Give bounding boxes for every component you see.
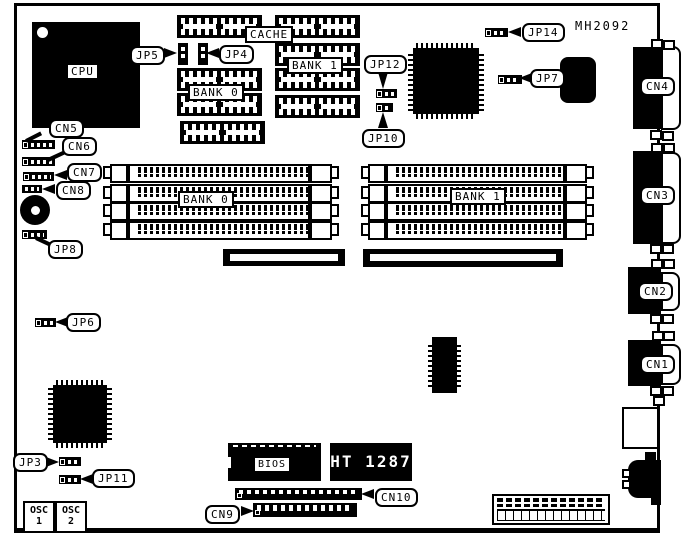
din-tab xyxy=(622,469,631,478)
bios-label: BIOS xyxy=(253,456,291,473)
cn7-label: CN7 xyxy=(67,163,102,182)
terminal-block xyxy=(492,494,610,525)
jp5-callout-pointer xyxy=(164,48,177,58)
bracket-tab xyxy=(663,40,675,50)
osc2-socket: OSC 2 xyxy=(55,501,87,533)
bracket-tab xyxy=(651,259,663,269)
jp12-jumper xyxy=(376,89,397,98)
bracket-tab xyxy=(651,39,663,49)
pin1-marker xyxy=(60,459,65,465)
bracket-tab xyxy=(650,386,662,396)
simm-slot xyxy=(368,164,587,183)
pin1-marker xyxy=(499,77,504,83)
jp12-callout-pointer xyxy=(378,72,388,89)
bracket-tab xyxy=(650,130,662,140)
bracket-tab xyxy=(662,314,674,324)
pin1-marker xyxy=(377,105,382,111)
jp4-callout-pointer xyxy=(206,48,219,58)
pin1-marker xyxy=(237,493,242,498)
bracket-tab xyxy=(653,396,665,406)
keyboard-din-connector xyxy=(628,460,661,498)
bracket-tab xyxy=(663,143,675,153)
osc1-number: 1 xyxy=(25,516,53,527)
osc1-name: OSC xyxy=(25,505,53,516)
cn9-header xyxy=(253,503,357,517)
bracket-tab xyxy=(651,143,663,153)
pin1-marker xyxy=(486,30,491,36)
simm-bank1-label: BANK 1 xyxy=(450,188,506,205)
cn5-label: CN5 xyxy=(49,119,84,138)
bracket-tab xyxy=(662,244,674,254)
cpu-label: CPU xyxy=(66,63,99,80)
bracket-tab xyxy=(650,244,662,254)
pin1-marker xyxy=(24,174,29,180)
cn2-label: CN2 xyxy=(638,282,673,301)
jp3-callout-pointer xyxy=(46,457,59,467)
bracket-tab xyxy=(663,331,675,341)
card-edge-slot xyxy=(223,249,345,266)
cache-socket xyxy=(275,95,360,118)
cn10-header xyxy=(235,488,362,500)
pin1-marker xyxy=(36,320,41,326)
bracket-tab xyxy=(662,131,674,141)
cn8-header xyxy=(22,185,42,193)
jp5-jumper xyxy=(178,43,188,65)
jp6-label: JP6 xyxy=(66,313,101,332)
socket-band xyxy=(281,104,354,110)
small-chip xyxy=(560,57,596,103)
cn6-label: CN6 xyxy=(62,137,97,156)
jp10-jumper xyxy=(376,103,393,112)
pin1-marker xyxy=(23,232,28,238)
jp5-label: JP5 xyxy=(130,46,165,65)
chipset-qfp-chip xyxy=(408,43,484,119)
din-step-bottom xyxy=(651,497,661,505)
jp7-label: JP7 xyxy=(530,69,565,88)
socket-band xyxy=(183,102,256,108)
pin1-marker xyxy=(377,91,382,97)
bracket-tab xyxy=(662,386,674,396)
bracket-tab xyxy=(663,259,675,269)
simm-bank0-label: BANK 0 xyxy=(178,191,234,208)
cn8-callout-pointer xyxy=(42,184,55,194)
jp14-label: JP14 xyxy=(522,23,565,42)
cache-socket xyxy=(180,121,265,144)
cn10-label: CN10 xyxy=(375,488,418,507)
ht1287-chip: HT 1287 xyxy=(330,443,412,481)
cache-bank0-label: BANK 0 xyxy=(188,84,244,101)
cn9-label: CN9 xyxy=(205,505,240,524)
motherboard-diagram: MH2092 CPU CACHE BANK 1 BANK 0 JP5 JP4 J… xyxy=(0,0,686,546)
cn9-callout-pointer xyxy=(241,506,254,516)
terminal-screws xyxy=(497,498,605,507)
io-qfp-chip xyxy=(48,380,112,448)
jp14-jumper xyxy=(485,28,508,37)
cache-bank1-label: BANK 1 xyxy=(287,57,343,74)
center-chip xyxy=(428,337,461,393)
cpu-pin1-marker xyxy=(37,27,48,38)
cn7-callout-pointer xyxy=(54,170,67,180)
cache-label: CACHE xyxy=(245,26,293,43)
cn10-callout-pointer xyxy=(361,489,374,499)
simm-slot xyxy=(368,221,587,240)
simm-slot xyxy=(110,221,332,240)
jp4-label: JP4 xyxy=(219,45,254,64)
part-number: MH2092 xyxy=(575,19,630,33)
simm-slot xyxy=(110,164,332,183)
cn3-label: CN3 xyxy=(640,186,675,205)
jp3-label: JP3 xyxy=(13,453,48,472)
pin1-marker xyxy=(60,477,65,483)
power-connector xyxy=(622,407,659,449)
din-tab xyxy=(622,480,631,489)
jp10-callout-pointer xyxy=(378,112,388,128)
pin1-marker xyxy=(23,159,28,165)
cn1-label: CN1 xyxy=(640,355,675,374)
terminal-holes xyxy=(497,509,605,521)
jp8-label: JP8 xyxy=(48,240,83,259)
jp12-label: JP12 xyxy=(364,55,407,74)
speaker-buzzer xyxy=(20,195,50,225)
cn8-label: CN8 xyxy=(56,181,91,200)
jp6-jumper xyxy=(35,318,56,327)
socket-band xyxy=(183,77,256,83)
jp11-label: JP11 xyxy=(92,469,135,488)
osc2-number: 2 xyxy=(57,516,85,527)
pin1-marker xyxy=(255,510,260,515)
cn4-label: CN4 xyxy=(640,77,675,96)
osc2-name: OSC xyxy=(57,505,85,516)
card-edge-slot xyxy=(363,249,563,267)
socket-band xyxy=(186,130,259,136)
osc1-socket: OSC 1 xyxy=(23,501,55,533)
socket-band xyxy=(281,77,354,83)
jp10-label: JP10 xyxy=(362,129,405,148)
jp11-jumper xyxy=(59,475,81,484)
jp14-callout-pointer xyxy=(508,27,521,37)
bracket-tab xyxy=(650,314,662,324)
jp8-header xyxy=(22,230,47,239)
cn7-header xyxy=(23,172,54,181)
jp3-jumper xyxy=(59,457,81,466)
